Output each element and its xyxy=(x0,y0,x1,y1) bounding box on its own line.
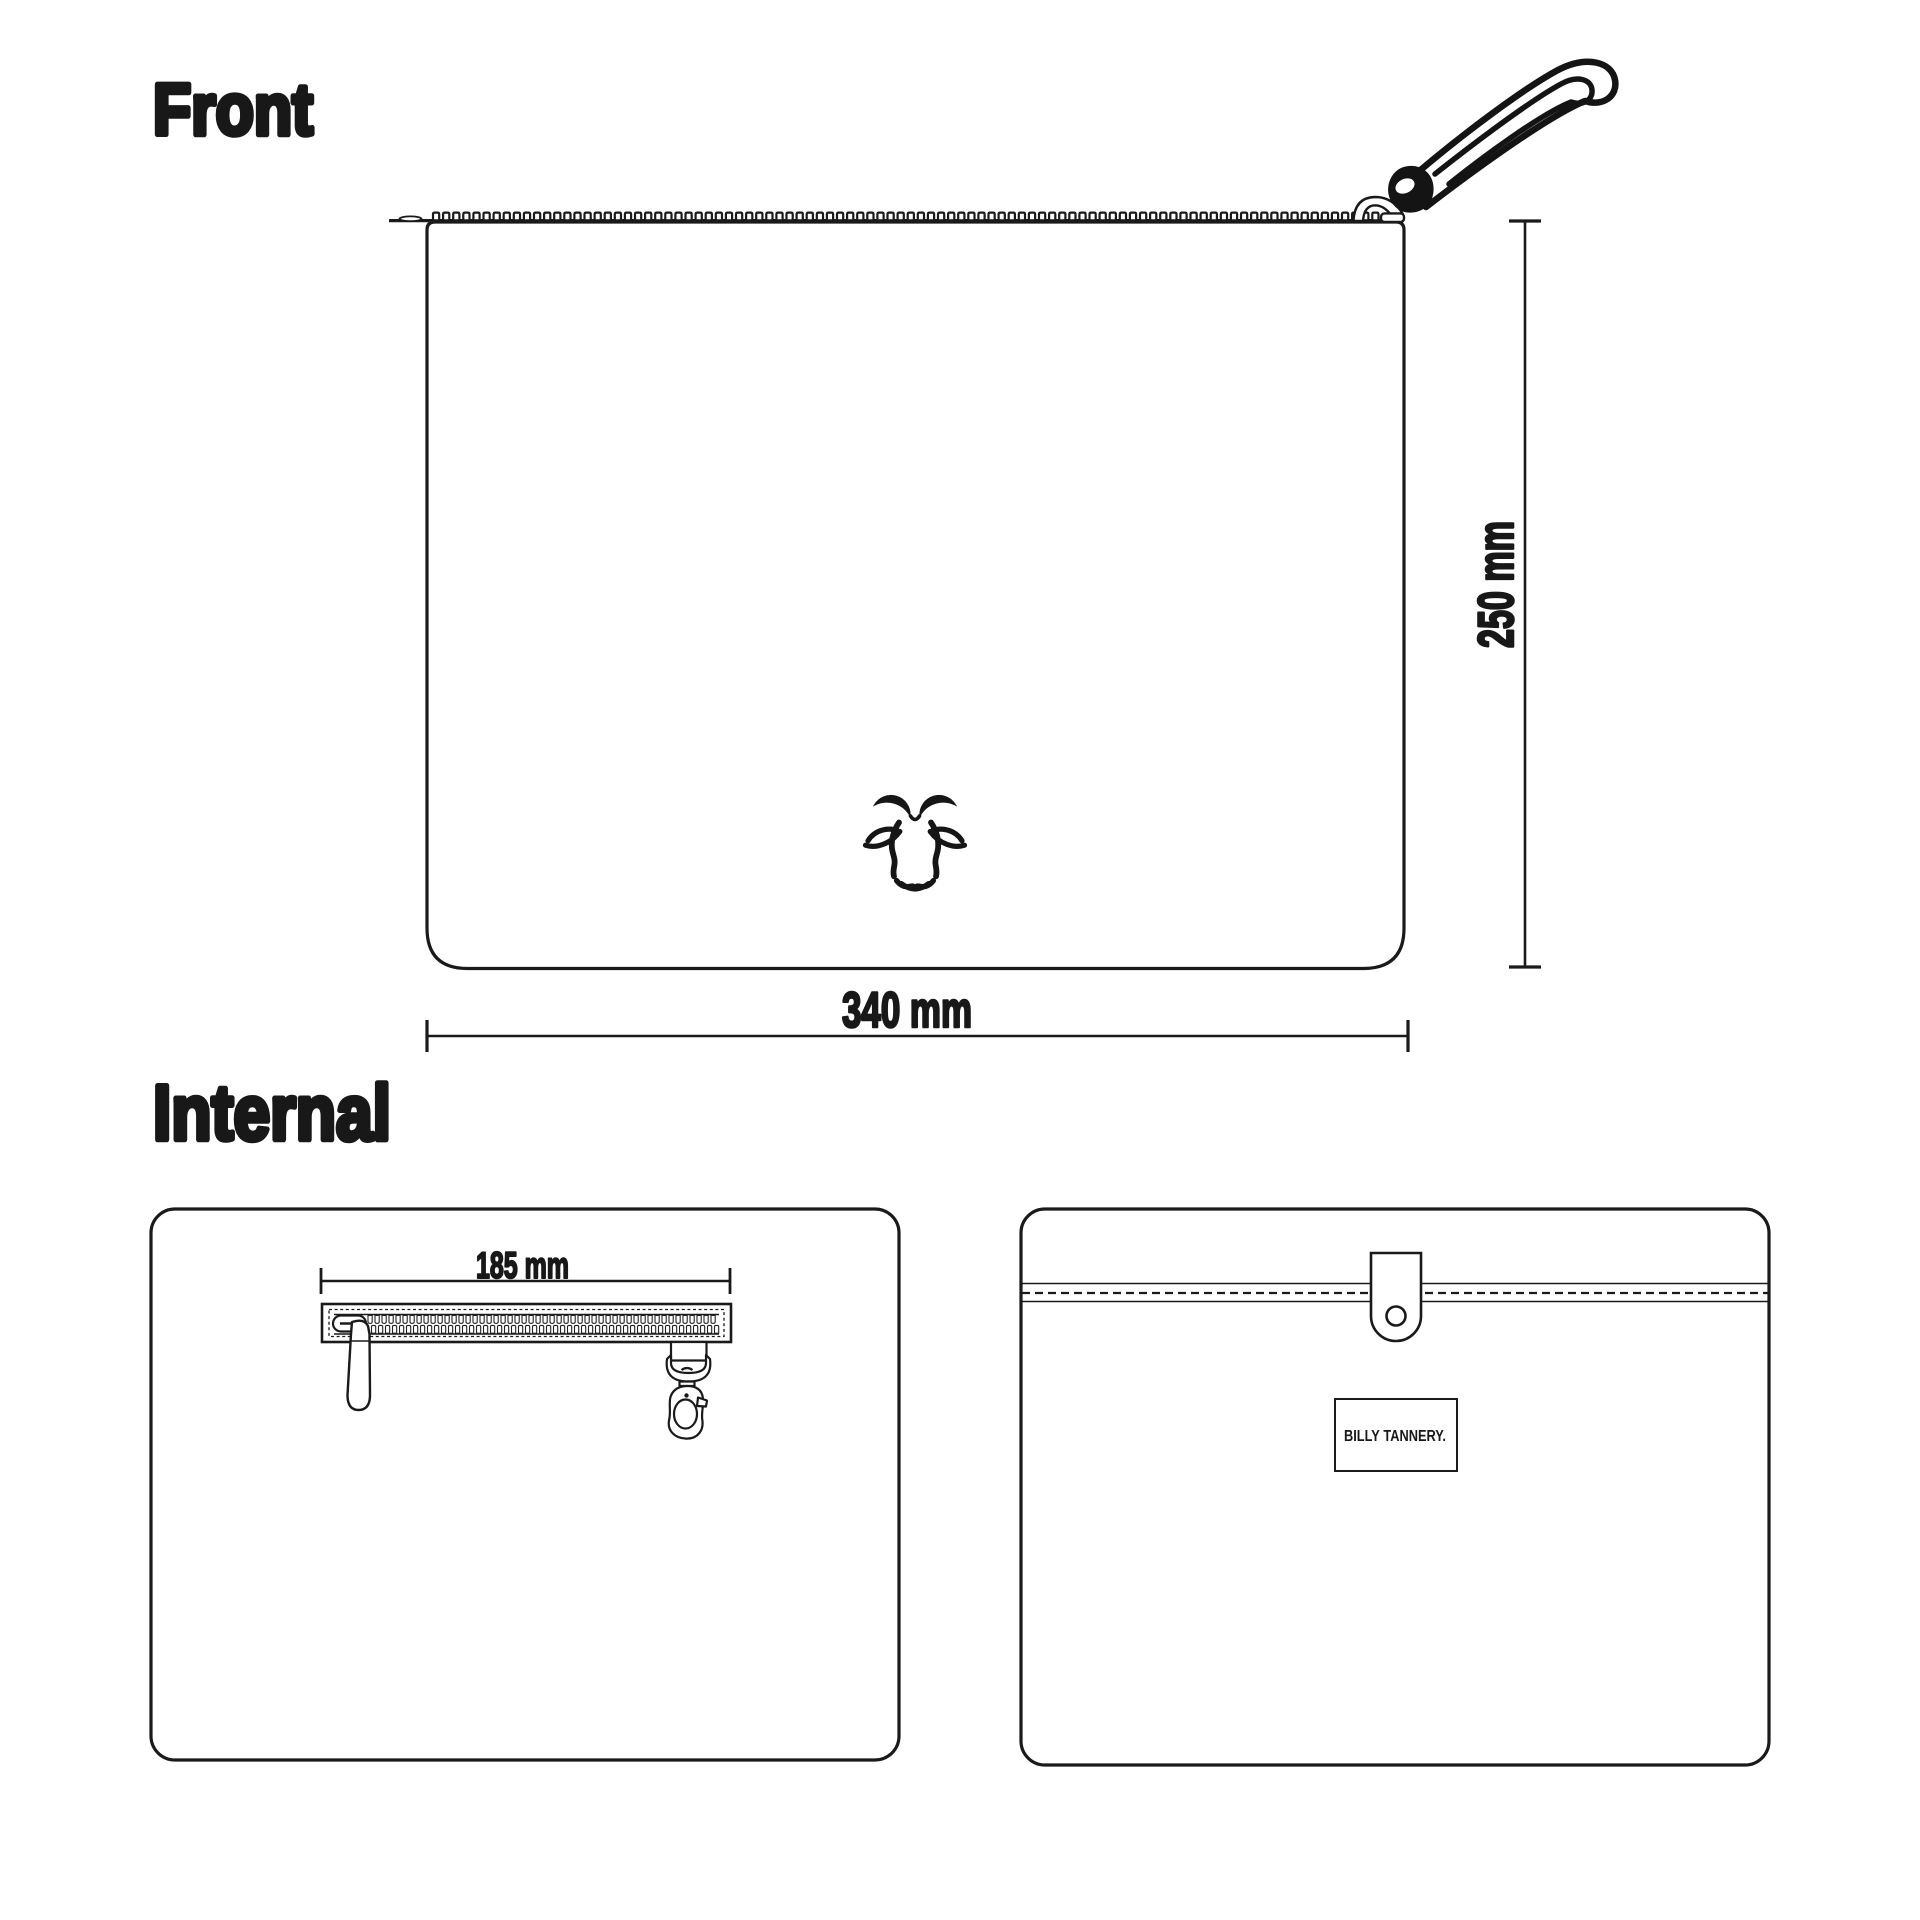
svg-text:250 mm: 250 mm xyxy=(1468,521,1524,648)
svg-text:340 mm: 340 mm xyxy=(842,982,972,1038)
svg-text:Front: Front xyxy=(153,71,313,151)
svg-text:Internal: Internal xyxy=(153,1069,391,1157)
svg-text:BILLY TANNERY.: BILLY TANNERY. xyxy=(1344,1428,1446,1445)
svg-text:185 mm: 185 mm xyxy=(476,1245,569,1286)
